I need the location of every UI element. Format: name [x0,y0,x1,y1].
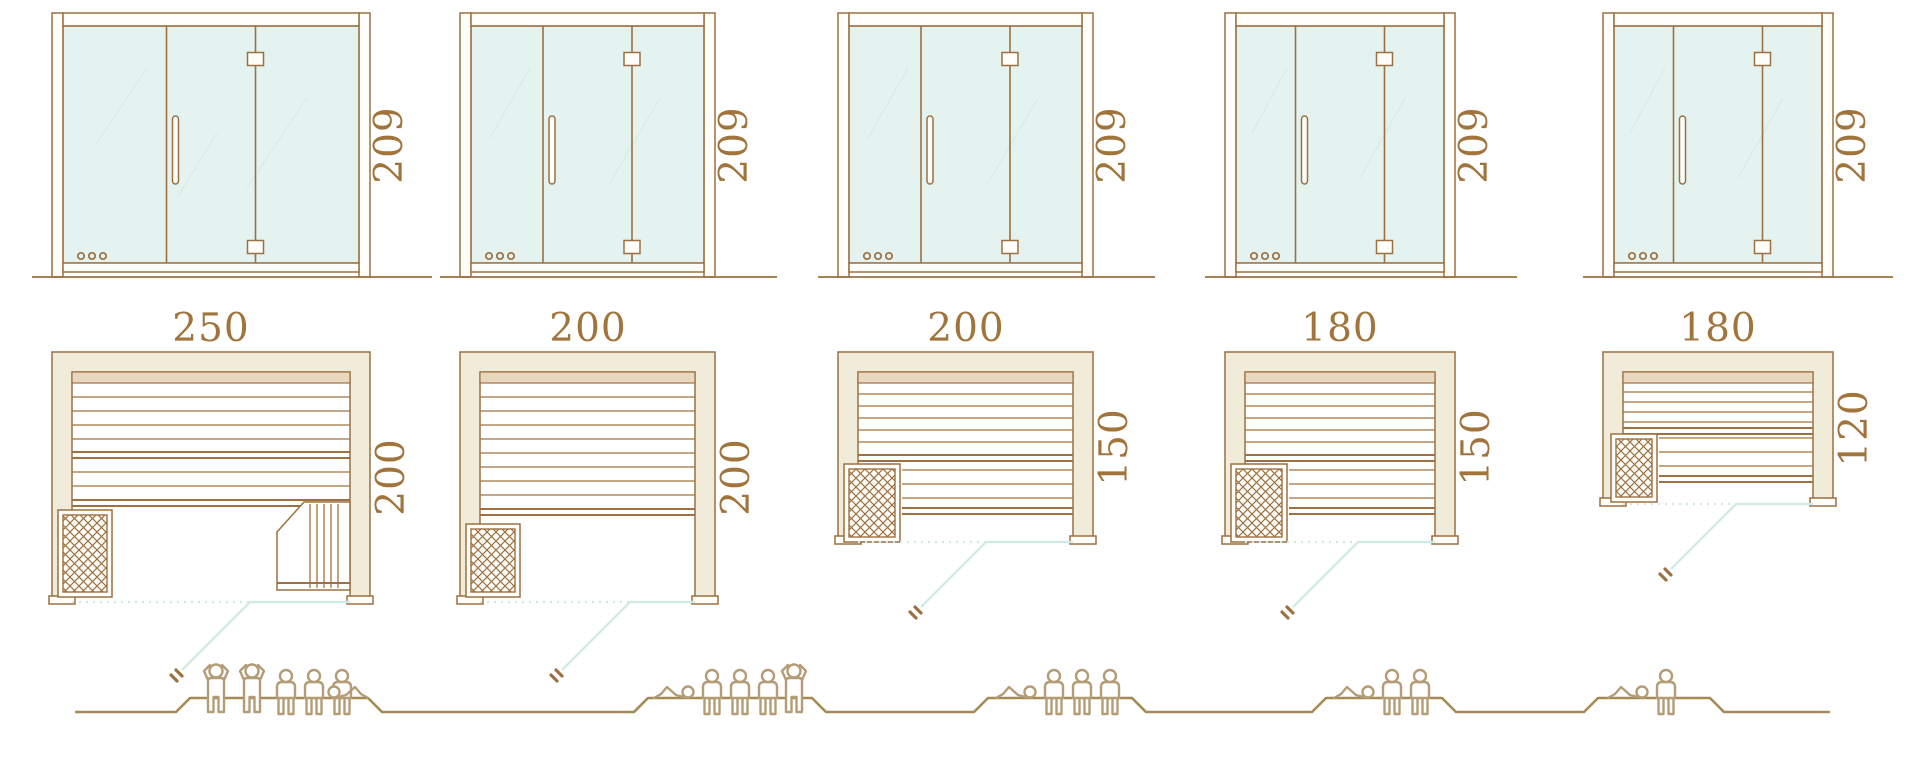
plan-depth-label: 150 [1092,408,1137,485]
door-elevation [460,13,715,277]
heater [1611,434,1657,502]
diagram-canvas: 209 250 200 [0,0,1920,764]
door-hinge-bottom [1377,241,1393,254]
back-bench [1245,372,1435,461]
glass-front [1236,26,1444,263]
door-elevation [1225,13,1455,277]
person-sitting-icon [1073,670,1091,714]
heater [58,510,112,597]
person-standing-icon [782,665,806,713]
sauna-model-column-2: 209 200 200 [440,13,777,681]
plan-width-label: 180 [1301,306,1378,351]
lower-bench [1659,438,1813,482]
sauna-model-column-4: 209 180 150 [1205,13,1517,618]
door-handle [927,116,933,184]
plan-depth-label: 120 [1832,389,1877,466]
door-hinge-top [1377,53,1393,66]
wall-foot-right [1432,536,1458,544]
glass-front [1614,26,1822,263]
person-sitting-icon [731,670,749,714]
person-lying-icon [996,687,1036,699]
frame-post-left [460,13,471,277]
door-handle-mark [551,670,562,681]
door-handle [1680,116,1686,184]
person-standing-icon [240,665,264,713]
back-bench [1623,372,1813,434]
door-swing [480,602,695,681]
frame-beam-top [471,13,704,26]
person-sitting-icon [1411,670,1429,714]
plan-depth-label: 200 [369,438,414,515]
sauna-model-column-5: 209 180 120 [1583,13,1893,580]
door-handle-mark [171,670,182,681]
person-lying-icon [654,687,694,699]
frame-beam-top [849,13,1082,26]
capacity-figures-model-2 [654,665,806,715]
door-sill [1236,263,1444,272]
floor-plan [1600,352,1836,580]
wall-foot-right [1070,536,1096,544]
person-sitting-icon [1101,670,1119,714]
frame-post-left [1225,13,1236,277]
sauna-model-column-1: 209 250 200 [32,13,432,681]
plan-width-label: 180 [1679,306,1756,351]
person-sitting-icon [305,670,323,714]
door-height-label: 209 [1090,106,1135,183]
wall-foot-right [1810,498,1836,506]
glass-front [63,26,359,263]
lower-bench [1289,470,1435,514]
floor-plan [835,352,1096,618]
door-hinge-bottom [1755,241,1771,254]
door-hinge-bottom [248,241,264,254]
door-sill [849,263,1082,272]
door-sill [471,263,704,272]
door-swing [1623,504,1813,580]
door-elevation [838,13,1093,277]
door-height-label: 209 [1452,106,1497,183]
person-sitting-icon [703,670,721,714]
wall-foot-right [692,596,718,604]
wall-foot-right [347,596,373,604]
person-sitting-icon [1657,670,1675,714]
door-sill [1614,263,1822,272]
capacity-figures-model-4 [1334,670,1429,714]
glass-front [471,26,704,263]
heater [1231,464,1287,542]
plan-width-label: 250 [172,306,249,351]
plan-depth-label: 150 [1454,408,1499,485]
door-handle [1302,116,1308,184]
person-lying-icon [1334,687,1374,699]
door-sill [63,263,359,272]
frame-beam-top [1236,13,1444,26]
sauna-model-column-3: 209 200 150 [818,13,1155,618]
floor-plan [1222,352,1458,618]
door-height-label: 209 [367,106,412,183]
door-hinge-top [1755,53,1771,66]
door-handle-mark [1660,569,1671,580]
frame-post-left [52,13,63,277]
door-swing [1245,542,1435,618]
door-handle-mark [910,607,921,618]
plan-width-label: 200 [927,306,1004,351]
door-handle [549,116,555,184]
door-hinge-top [1002,53,1018,66]
door-hinge-top [248,53,264,66]
heater [466,524,520,597]
floor-plan [49,352,373,681]
door-elevation [52,13,370,277]
back-bench [72,372,350,506]
capacity-figures-model-3 [996,670,1119,714]
plan-depth-label: 200 [714,438,759,515]
person-lying-icon [1608,687,1648,699]
door-swing [858,542,1073,618]
sauna-size-diagram: 209 250 200 [0,0,1920,764]
door-hinge-bottom [624,241,640,254]
back-bench [480,372,695,515]
heater [844,464,900,542]
capacity-figures-model-5 [1608,670,1675,714]
frame-post-left [1603,13,1614,277]
floor-plan [457,352,718,681]
back-bench [858,372,1073,461]
door-height-label: 209 [1830,106,1875,183]
door-height-label: 209 [712,106,757,183]
capacity-figures-model-1 [204,665,368,715]
person-sitting-icon [277,670,295,714]
person-standing-icon [204,665,228,713]
side-bench [277,502,350,590]
person-sitting-icon [1045,670,1063,714]
glass-front [849,26,1082,263]
door-hinge-top [624,53,640,66]
lower-bench [902,470,1073,514]
frame-beam-top [63,13,359,26]
capacity-row [75,665,1830,715]
person-sitting-icon [759,670,777,714]
door-handle-mark [1282,607,1293,618]
door-elevation [1603,13,1833,277]
frame-beam-top [1614,13,1822,26]
person-sitting-icon [1383,670,1401,714]
frame-post-left [838,13,849,277]
door-handle [173,116,179,184]
door-hinge-bottom [1002,241,1018,254]
plan-width-label: 200 [549,306,626,351]
